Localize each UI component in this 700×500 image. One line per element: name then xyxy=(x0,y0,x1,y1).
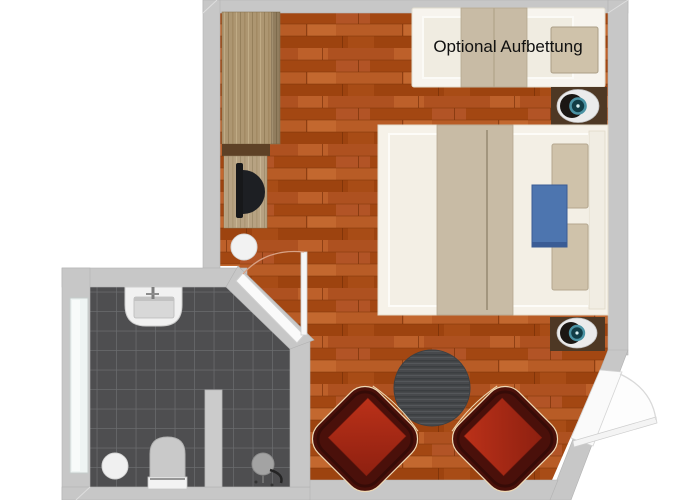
table-lamp-top xyxy=(557,90,599,123)
sink xyxy=(125,287,182,326)
bathroom-door-open-leaf xyxy=(301,252,307,335)
wall-bathroom-right xyxy=(290,340,310,487)
bed-runner xyxy=(532,185,567,247)
toilet xyxy=(148,437,187,489)
bed-blanket xyxy=(437,125,513,315)
waste-bin xyxy=(231,234,257,260)
floor-plan-canvas: Optional Aufbettung xyxy=(0,0,700,500)
bath-stool xyxy=(102,453,128,479)
headboard xyxy=(589,131,605,309)
partition-wall xyxy=(205,390,222,487)
optional-bed-label: Optional Aufbettung xyxy=(433,37,582,56)
floor-plan: Optional Aufbettung xyxy=(0,0,700,500)
wall-right xyxy=(608,0,628,355)
bathroom-window xyxy=(70,298,88,473)
wall-left xyxy=(203,0,220,272)
double-bed xyxy=(378,125,608,315)
wardrobe xyxy=(222,12,280,144)
table-lamp-bottom xyxy=(557,318,597,348)
shower-head-icon xyxy=(252,453,274,475)
shelf-edge xyxy=(222,144,270,156)
